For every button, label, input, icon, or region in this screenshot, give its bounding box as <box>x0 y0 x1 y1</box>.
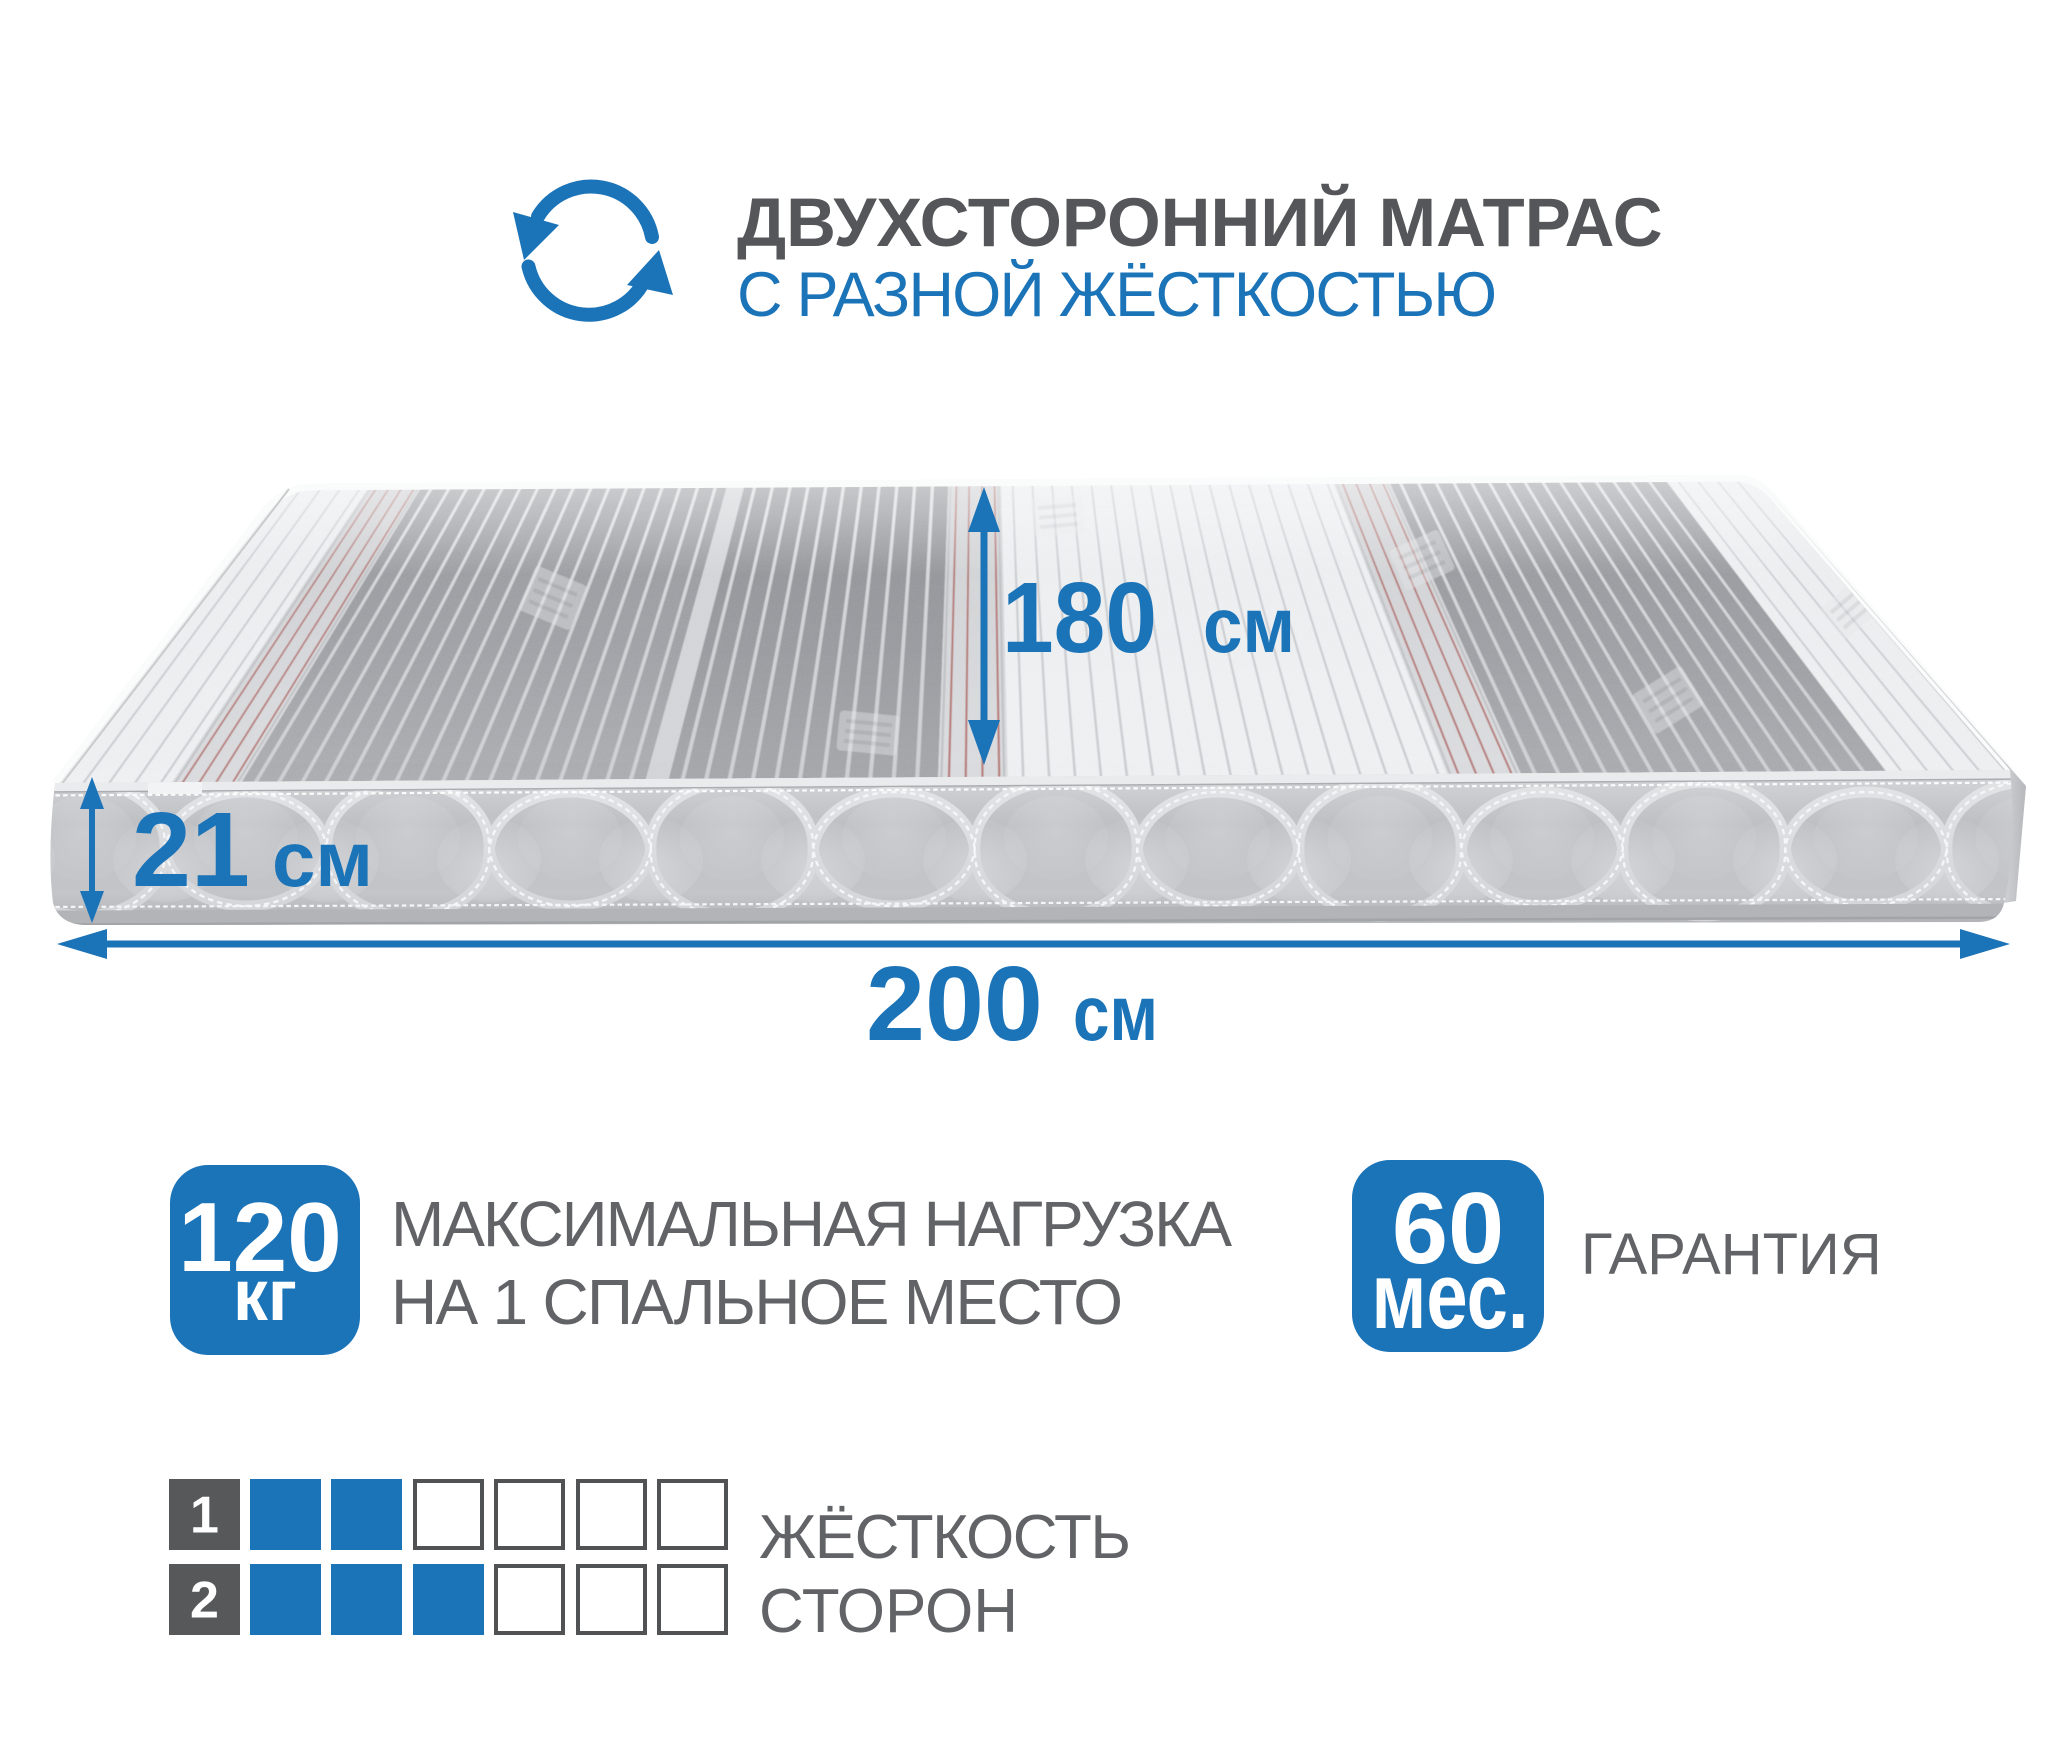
svg-text:МАКСИМАЛЬНАЯ НАГРУЗКА: МАКСИМАЛЬНАЯ НАГРУЗКА <box>391 1188 1232 1260</box>
svg-text:ЖЁСТКОСТЬ: ЖЁСТКОСТЬ <box>759 1503 1131 1572</box>
svg-text:кг: кг <box>233 1256 297 1336</box>
svg-text:2: 2 <box>190 1572 219 1630</box>
svg-text:180: 180 <box>1002 562 1157 674</box>
svg-text:см: см <box>1073 969 1158 1057</box>
svg-text:ДВУХСТОРОННИЙ МАТРАС: ДВУХСТОРОННИЙ МАТРАС <box>737 183 1663 261</box>
svg-text:СТОРОН: СТОРОН <box>759 1577 1018 1646</box>
svg-text:см: см <box>1203 581 1295 669</box>
svg-text:ГАРАНТИЯ: ГАРАНТИЯ <box>1581 1222 1882 1287</box>
svg-text:см: см <box>272 815 373 903</box>
svg-text:мес.: мес. <box>1372 1243 1529 1348</box>
svg-text:С РАЗНОЙ ЖЁСТКОСТЬЮ: С РАЗНОЙ ЖЁСТКОСТЬЮ <box>737 259 1497 330</box>
svg-text:НА 1 СПАЛЬНОЕ МЕСТО: НА 1 СПАЛЬНОЕ МЕСТО <box>391 1266 1123 1338</box>
svg-text:21: 21 <box>132 791 250 909</box>
svg-text:1: 1 <box>190 1487 219 1545</box>
svg-text:200: 200 <box>866 945 1043 1063</box>
